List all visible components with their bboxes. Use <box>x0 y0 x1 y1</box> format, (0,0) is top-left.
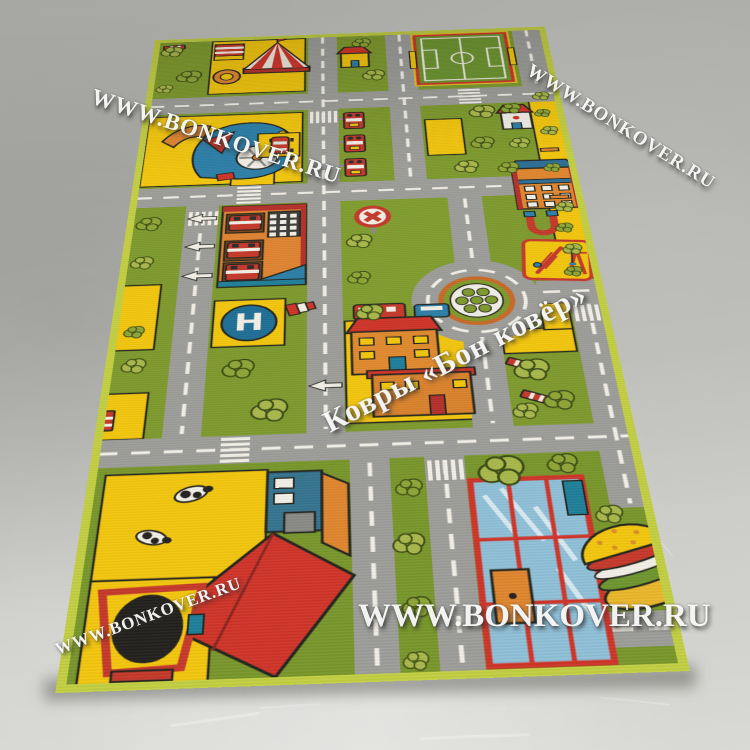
product-photo-scene: H <box>0 0 750 750</box>
helipad-letter: H <box>233 308 264 336</box>
toy-shop <box>214 44 244 60</box>
small-house <box>337 46 372 67</box>
watermark-bottom-center: WWW.BONKOVER.RU <box>358 598 711 635</box>
football-field <box>408 31 521 85</box>
fire-station <box>217 204 306 287</box>
